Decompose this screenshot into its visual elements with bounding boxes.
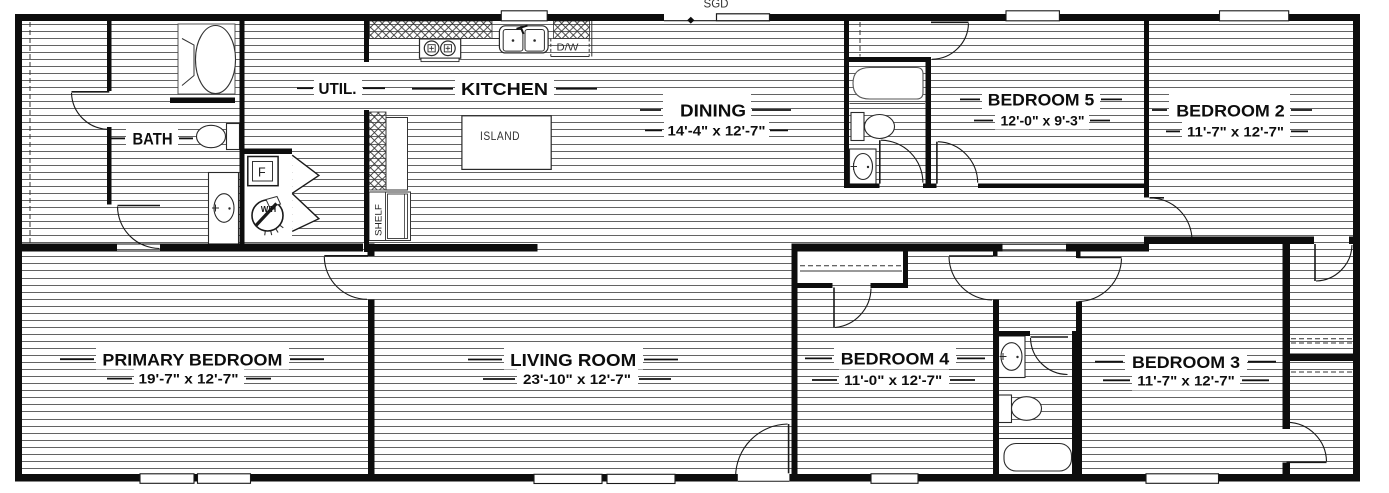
svg-text:14'-4" x 12'-7": 14'-4" x 12'-7" xyxy=(668,123,766,138)
svg-text:KITCHEN: KITCHEN xyxy=(461,79,548,99)
svg-text:F: F xyxy=(258,166,266,180)
svg-text:11'-7" x 12'-7": 11'-7" x 12'-7" xyxy=(1187,124,1284,139)
svg-text:23'-10" x 12'-7": 23'-10" x 12'-7" xyxy=(523,372,631,387)
svg-text:BEDROOM 3: BEDROOM 3 xyxy=(1132,354,1240,372)
svg-text:UTIL.: UTIL. xyxy=(319,81,357,98)
svg-text:SGD: SGD xyxy=(704,0,729,11)
svg-text:11'-7" x 12'-7": 11'-7" x 12'-7" xyxy=(1137,373,1235,388)
svg-text:D/W: D/W xyxy=(557,43,580,54)
svg-text:ISLAND: ISLAND xyxy=(480,129,520,143)
svg-text:W/H: W/H xyxy=(261,205,277,214)
svg-text:LIVING ROOM: LIVING ROOM xyxy=(510,350,636,370)
svg-text:BATH: BATH xyxy=(133,130,173,149)
svg-text:BEDROOM 4: BEDROOM 4 xyxy=(841,351,950,369)
svg-text:BEDROOM 5: BEDROOM 5 xyxy=(988,92,1095,110)
svg-text:19'-7" x 12'-7": 19'-7" x 12'-7" xyxy=(139,372,239,387)
svg-text:PRIMARY BEDROOM: PRIMARY BEDROOM xyxy=(102,351,282,370)
svg-text:11'-0" x 12'-7": 11'-0" x 12'-7" xyxy=(844,373,942,388)
svg-text:SHELF: SHELF xyxy=(374,204,385,236)
svg-text:DINING: DINING xyxy=(680,100,746,120)
svg-text:BEDROOM 2: BEDROOM 2 xyxy=(1176,103,1285,121)
svg-text:12'-0" x 9'-3": 12'-0" x 9'-3" xyxy=(1001,114,1085,129)
